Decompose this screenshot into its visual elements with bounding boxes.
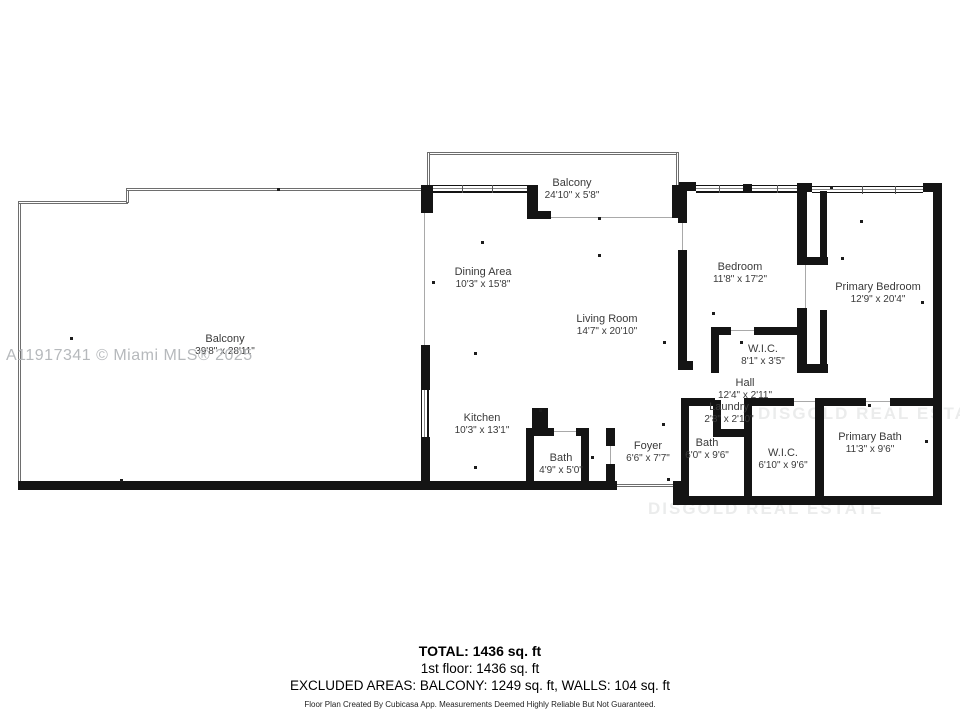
wall [820,310,827,371]
wall [677,496,935,505]
balcony-railing [18,201,128,204]
wall [820,191,827,259]
window-tick [462,185,463,193]
wall [824,398,866,406]
wall [933,185,942,505]
measure-dot [712,312,715,315]
window-tick [777,185,778,193]
wall [797,190,807,260]
room-label-bath-small: Bath 4'9" x 5'0" [539,452,583,477]
wall [711,327,719,373]
measure-dot [539,409,542,412]
measure-dot [841,257,844,260]
wall [678,190,687,223]
measure-dot [432,281,435,284]
window [827,186,923,193]
room-label-foyer: Foyer 6'6" x 7'7" [626,440,670,465]
measure-dot [70,337,73,340]
window [421,390,429,438]
measure-dot [662,423,665,426]
room-label-wic-bedroom: W.I.C. 8'1" x 3'5" [741,343,785,368]
disclaimer-text: Floor Plan Created By Cubicasa App. Meas… [0,700,960,710]
measure-dot [277,188,280,191]
measure-dot [868,404,871,407]
wall [421,437,430,485]
sliding-door-line [538,217,672,218]
room-label-wic: W.I.C. 6'10" x 9'6" [758,447,807,472]
room-label-laundry: Laundry 2'8" x 2'10" [704,401,753,426]
measure-dot [830,186,833,189]
door-line [552,431,578,432]
excluded-areas-text: EXCLUDED AREAS: BALCONY: 1249 sq. ft, WA… [0,677,960,694]
room-label-bath: Bath 6'0" x 9'6" [685,437,729,462]
measure-dot [860,220,863,223]
wall [678,250,687,363]
mls-watermark: A11917341 © Miami MLS® 2025 [6,347,253,365]
first-floor-area-text: 1st floor: 1436 sq. ft [0,660,960,677]
room-label-living-room: Living Room 14'7" x 20'10" [576,313,637,338]
measure-dot [667,478,670,481]
balcony-railing [18,201,21,486]
wall [421,185,433,213]
wall [815,398,824,500]
room-label-dining-area: Dining Area 10'3" x 15'8" [455,266,512,291]
wall [678,361,693,370]
balcony-railing [427,152,679,155]
measure-dot [474,352,477,355]
measure-dot [663,341,666,344]
brand-watermark: DISGOLD REAL ESTATE [758,404,960,424]
window-tick [719,185,720,193]
floor-plan-canvas: A11917341 © Miami MLS® 2025 DISGOLD REAL… [0,0,960,720]
window-tick [492,185,493,193]
wall [754,327,803,335]
wall [606,464,615,487]
balcony-railing [427,152,430,188]
room-label-hall: Hall 12'4" x 2'11" [718,377,772,402]
door-line [794,401,817,402]
wall [527,211,551,219]
entry-door-line [613,484,679,487]
wall [743,184,752,193]
measure-dot [598,217,601,220]
window-tick [895,186,896,194]
measure-dot [120,479,123,482]
room-label-bedroom: Bedroom 11'8" x 17'2" [713,261,767,286]
room-label-kitchen: Kitchen 10'3" x 13'1" [455,412,510,437]
measure-dot [921,301,924,304]
wall [421,345,430,390]
measure-dot [925,440,928,443]
door-line [731,330,754,331]
door-line [866,401,890,402]
room-label-primary-bath: Primary Bath 11'3" x 9'6" [838,431,902,456]
door-line [682,222,683,250]
window-tick [862,186,863,194]
measure-dot [591,456,594,459]
sliding-door-line [424,213,425,345]
wall [526,428,534,487]
area-summary: TOTAL: 1436 sq. ft 1st floor: 1436 sq. f… [0,643,960,710]
balcony-railing [126,188,423,191]
measure-dot [481,241,484,244]
room-label-balcony-top: Balcony 24'10" x 5'8" [545,177,600,202]
door-line [610,446,611,466]
window [433,185,527,193]
wall [797,308,807,372]
total-area-text: TOTAL: 1436 sq. ft [0,643,960,660]
measure-dot [598,254,601,257]
floorplan-page: { "plan": { "mls_watermark": "A11917341 … [0,0,960,720]
wall [890,398,935,406]
window [752,185,797,193]
door-line [805,264,806,308]
measure-dot [474,466,477,469]
wall [744,434,752,500]
room-label-primary-bedroom: Primary Bedroom 12'9" x 20'4" [835,281,921,306]
wall [606,428,615,446]
